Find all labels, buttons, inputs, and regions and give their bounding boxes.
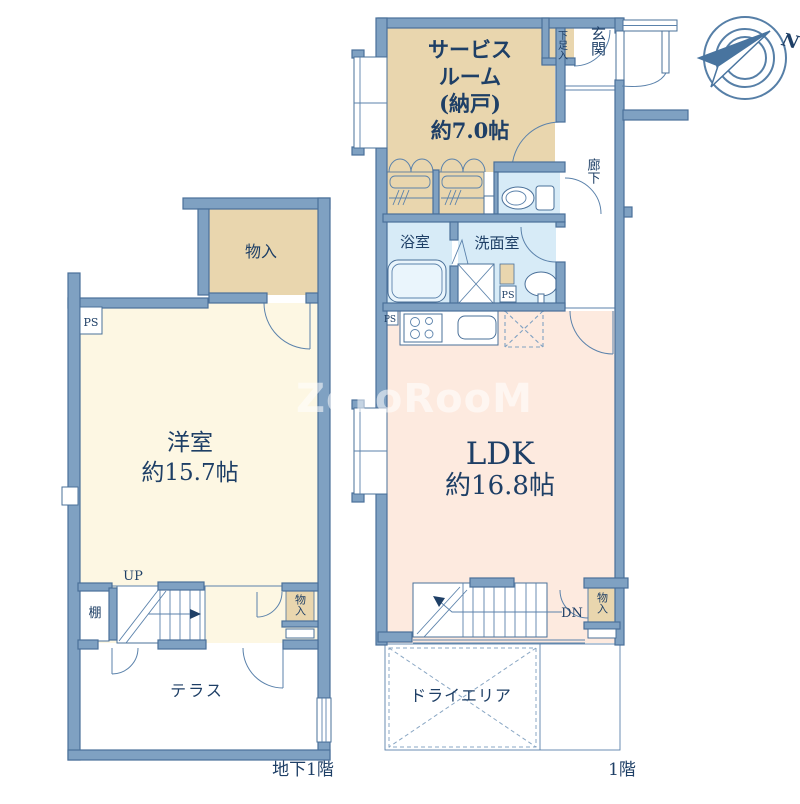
- service-room-line2: ルーム: [439, 64, 501, 89]
- cabinet-box: [500, 264, 514, 284]
- watermark: ZeroRooM: [296, 376, 533, 422]
- closet-a: [387, 172, 433, 214]
- f1-floor-label: 1階: [608, 760, 636, 780]
- shelf-label: 棚: [88, 606, 101, 621]
- toilet-fixture: [502, 186, 554, 210]
- stairs-down-label: DN: [561, 606, 583, 621]
- plan-b1f: PS 物入 洋室 約15.7帖 棚 UP 物入 テラス 地下1階: [62, 198, 334, 780]
- western-room-size: 約15.7帖: [141, 460, 238, 486]
- bathroom-label: 浴室: [400, 233, 430, 251]
- ldk-name: LDK: [466, 436, 535, 472]
- dry-area-label: ドライエリア: [410, 686, 512, 705]
- floorplan-canvas: PS 物入 洋室 約15.7帖 棚 UP 物入 テラス 地下1階: [0, 0, 800, 800]
- service-room-line1: サービス: [428, 37, 512, 62]
- washroom-label: 洗面室: [474, 234, 519, 252]
- service-room-window: [352, 50, 387, 155]
- shoe-cabinet-label: 下足入: [556, 30, 568, 60]
- compass-north-label: N: [779, 29, 800, 54]
- floorplan-svg: PS 物入 洋室 約15.7帖 棚 UP 物入 テラス 地下1階: [0, 0, 800, 800]
- entrance-label: 玄関: [589, 26, 607, 57]
- entrance-porch: [616, 20, 677, 86]
- closet-b: [439, 172, 484, 214]
- vent-slot: [286, 629, 314, 638]
- closet-bottom-label: 物入: [294, 593, 307, 616]
- service-room-line3: (納戸): [439, 91, 501, 116]
- wall-niche: [62, 487, 78, 505]
- front-door-leaf: [662, 31, 669, 73]
- washing-machine-pan: [458, 264, 494, 304]
- bathtub: [388, 260, 446, 302]
- vent-slot-1f: [588, 629, 616, 638]
- closet-top-label: 物入: [245, 242, 277, 261]
- door-terrace-left: [112, 648, 138, 674]
- terrace-label: テラス: [170, 681, 224, 700]
- stairs-up-label: UP: [123, 569, 143, 584]
- hallway-label: 廊下: [585, 157, 601, 184]
- service-room-line4: 約7.0帖: [431, 118, 510, 143]
- kitchen-counter: [400, 311, 498, 345]
- compass: N: [698, 17, 800, 99]
- ps-label-kitchen: PS: [384, 315, 396, 325]
- ldk-size: 約16.8帖: [445, 471, 555, 501]
- ps-label-washroom: PS: [502, 290, 515, 301]
- door-terrace-right: [243, 648, 283, 688]
- terrace-window: [317, 698, 331, 742]
- b1f-floor-label: 地下1階: [272, 760, 334, 780]
- ps-label-b1f: PS: [84, 316, 99, 329]
- closet-1f-label: 物入: [596, 591, 609, 614]
- western-room-name: 洋室: [167, 430, 213, 456]
